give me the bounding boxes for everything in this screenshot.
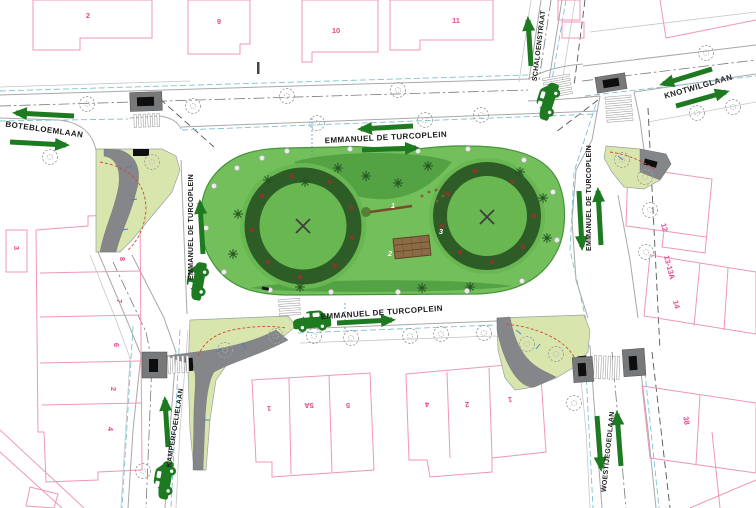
tree-icon (307, 329, 322, 344)
direction-arrow-icon (361, 126, 413, 129)
park-feature-marker: 1 (391, 201, 395, 210)
house-number: 2 (109, 387, 118, 391)
house-number: 5 (346, 401, 350, 410)
tree-icon (699, 46, 714, 61)
tree-icon (434, 327, 449, 342)
house-number: 6 (112, 343, 121, 347)
house-number: 38 (681, 416, 691, 426)
house-number: 14 (671, 299, 682, 310)
street-label-turcoplein-west: EMMANUEL DE TURCOPLEIN (188, 174, 195, 280)
tree-icon (280, 89, 295, 104)
house-number: 4 (106, 427, 115, 432)
tree-icon (186, 99, 201, 114)
curb-island-southwest (166, 316, 296, 470)
house-number: 1 (267, 404, 271, 413)
tree-icon (567, 396, 582, 411)
direction-arrow-icon (200, 203, 203, 254)
house-number: 8 (118, 257, 127, 261)
park-feature-marker: 2 (387, 249, 393, 258)
site-plan: 1 2 3 (0, 0, 756, 508)
direction-arrow-icon (617, 414, 621, 466)
house-number: 11 (452, 16, 460, 25)
direction-arrow-icon (597, 416, 601, 468)
house-number: 9 (217, 17, 221, 26)
map-canvas: 1 2 3 (0, 0, 756, 508)
direction-arrow-icon (528, 20, 531, 66)
tree-icon (344, 331, 359, 346)
direction-arrow-icon (16, 113, 74, 116)
tree-icon (403, 329, 418, 344)
house-number: 7 (115, 299, 124, 303)
direction-arrow-icon (165, 400, 168, 447)
tree-icon (43, 150, 58, 165)
direction-arrow-icon (362, 148, 416, 150)
tree-icon (80, 97, 95, 112)
direction-arrow-icon (337, 320, 392, 323)
house-number: 1 (508, 395, 513, 404)
street-label-woestijegoedlaan: WOESTIJEGOEDLAAN (601, 411, 616, 492)
direction-arrow-icon (598, 191, 601, 245)
car-icon (151, 460, 178, 501)
curb-island-northeast (604, 146, 671, 189)
house-number: 2 (86, 11, 90, 20)
street-label-turcoplein-north: EMMANUEL DE TURCOPLEIN (324, 130, 447, 145)
wooden-deck (393, 235, 431, 259)
curb-island-northwest (96, 149, 180, 252)
house-number: 5A (304, 401, 314, 410)
house-number: 2 (465, 400, 470, 409)
tree-icon (391, 83, 406, 98)
house-number: 10 (332, 26, 340, 35)
tree-icon (136, 464, 151, 479)
house-number: 4 (424, 400, 430, 409)
direction-arrow-icon (579, 191, 582, 247)
planting-circle-east (429, 158, 545, 274)
tree-icon (643, 203, 658, 218)
house-number: 3 (12, 246, 21, 250)
tree-icon (477, 326, 492, 341)
street-label-turcoplein-east: EMMANUEL DE TURCOPLEIN (586, 145, 593, 251)
house-number: 13-13A (662, 254, 677, 281)
direction-arrow-icon (10, 142, 66, 145)
tree-icon (639, 245, 654, 260)
